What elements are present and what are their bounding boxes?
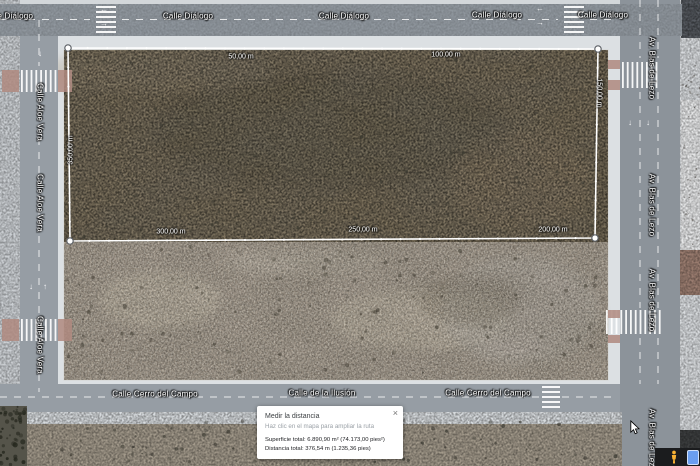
shrub [208, 426, 211, 429]
shrub [309, 305, 311, 307]
measure-tick-dot [558, 48, 560, 50]
shrub [11, 417, 14, 420]
shrub [234, 311, 236, 313]
shrub [226, 430, 230, 434]
shrub [539, 335, 543, 339]
measure-tick-dot [68, 124, 70, 126]
shrub [602, 95, 604, 97]
shrub [8, 412, 13, 417]
shrub [170, 324, 173, 327]
shrub [535, 450, 536, 451]
shrub [688, 255, 689, 256]
measure-tick-dot [67, 66, 69, 68]
shrub [82, 334, 85, 337]
shrub [584, 284, 588, 288]
measure-tick-dot [69, 221, 71, 223]
shrub [96, 449, 98, 451]
close-icon[interactable]: × [393, 408, 398, 418]
shrub [473, 436, 477, 440]
shrub [538, 447, 542, 451]
shrub [250, 448, 254, 452]
shrub [145, 454, 147, 456]
shrub [148, 303, 150, 305]
shrub [594, 275, 598, 279]
shrub [421, 441, 424, 444]
shrub [348, 254, 350, 256]
shrub [241, 419, 244, 422]
measure-vertex[interactable] [595, 46, 601, 52]
shrub [515, 298, 517, 300]
shrub [60, 448, 64, 452]
shrub [142, 445, 144, 447]
shrub [279, 277, 282, 280]
shrub [688, 116, 689, 117]
shrub [431, 271, 435, 275]
shrub [170, 427, 173, 430]
shrub [441, 286, 444, 289]
shrub [445, 430, 448, 433]
shrub [130, 349, 134, 353]
shrub [696, 240, 698, 242]
shrub [586, 292, 588, 294]
shrub [206, 253, 210, 257]
shrub [440, 454, 442, 456]
shrub [598, 130, 601, 133]
measure-tick-dot [87, 47, 89, 49]
shrub [21, 446, 24, 449]
measure-tick-dot [302, 239, 304, 241]
measure-tick-dot [186, 239, 188, 241]
shrub [504, 330, 506, 332]
shrub [483, 325, 487, 329]
shrub [436, 265, 438, 267]
shrub [689, 90, 691, 92]
measure-popup-title: Medir la distancia [265, 412, 395, 421]
shrub [127, 365, 130, 368]
shrub [598, 88, 601, 91]
measure-tick-dot [68, 105, 70, 107]
measure-tick-dot [302, 47, 304, 49]
shrub [21, 410, 26, 415]
shrub [82, 286, 84, 288]
shrub [600, 156, 603, 159]
shrub [127, 459, 130, 462]
shrub [133, 428, 134, 429]
shrub [513, 257, 517, 261]
shrub [152, 329, 154, 331]
measure-tick-dot [263, 239, 265, 241]
shrub [67, 180, 68, 181]
pegman-icon[interactable] [669, 450, 679, 464]
shrub [223, 438, 227, 442]
shrub [327, 260, 331, 264]
measure-tick-dot [419, 238, 421, 240]
shrub [238, 370, 242, 374]
measure-tick-dot [127, 240, 129, 242]
measure-tick-dot [166, 239, 168, 241]
shrub [512, 453, 514, 455]
shrub [592, 330, 596, 334]
measure-tick-dot [224, 47, 226, 49]
measure-tick-dot [596, 124, 598, 126]
shrub [70, 453, 73, 456]
shrub [598, 136, 599, 137]
shrub [485, 457, 487, 459]
shrub [197, 424, 200, 427]
shrub [271, 330, 273, 332]
shrub [87, 310, 91, 314]
shrub [306, 340, 309, 343]
shrub [529, 444, 531, 446]
measure-tick-dot [263, 47, 265, 49]
shrub [503, 341, 505, 343]
shrub [142, 250, 144, 252]
shrub [694, 174, 695, 175]
shrub [422, 371, 424, 373]
shrub [360, 313, 363, 316]
measure-tick-dot [399, 238, 401, 240]
shrub [322, 266, 326, 270]
shrub [191, 429, 193, 431]
shrub [698, 193, 700, 195]
shrub [20, 439, 25, 444]
measure-tick-dot [224, 239, 226, 241]
shrub [339, 250, 342, 253]
shrub [161, 332, 165, 336]
measure-surface-total: Superficie total: 6.890,90 m² (74.173,00… [265, 436, 395, 445]
shrub [683, 211, 685, 213]
shrub [22, 460, 26, 464]
shrub [599, 426, 601, 428]
shrub [361, 336, 364, 339]
shrub [16, 408, 18, 410]
shrub [376, 308, 380, 312]
shrub [48, 454, 52, 458]
shrub [494, 442, 497, 445]
shrub [133, 446, 135, 448]
shrub [691, 76, 693, 78]
shrub [278, 298, 281, 301]
shrub [589, 322, 593, 326]
measure-tick-dot [594, 218, 596, 220]
measure-tick-dot [69, 201, 71, 203]
shrub [564, 288, 568, 292]
measure-tick-dot [88, 240, 90, 242]
shrub [398, 260, 401, 263]
measure-path[interactable] [68, 48, 598, 241]
shrub [454, 456, 457, 459]
measure-tick-dot [438, 238, 440, 240]
shrub [601, 329, 604, 332]
shrub [275, 277, 278, 280]
shrub [113, 458, 115, 460]
shrub [371, 309, 375, 313]
shrub [489, 326, 493, 330]
shrub [268, 359, 272, 363]
shrub [80, 440, 82, 442]
measure-popup-hint: Haz clic en el mapa para ampliar la ruta [265, 423, 395, 431]
measure-tick-dot [597, 67, 599, 69]
shrub [2, 451, 5, 454]
shrub [82, 319, 84, 321]
shrub [175, 447, 179, 451]
shrub [569, 338, 572, 341]
shrub [536, 349, 538, 351]
shrub [486, 336, 489, 339]
measure-tick-dot [401, 48, 403, 50]
shrub [328, 324, 330, 326]
measure-tick-dot [380, 238, 382, 240]
measure-tick-dot [440, 48, 442, 50]
shrub [149, 338, 153, 342]
shrub [14, 411, 19, 416]
shrub [253, 460, 256, 463]
measure-tick-dot [108, 240, 110, 242]
shrub [697, 152, 698, 153]
shrub [561, 453, 563, 455]
shrub [307, 281, 311, 285]
shrub [171, 277, 174, 280]
measure-tick-dot [538, 48, 540, 50]
shrub [201, 291, 204, 294]
measure-tick-dot [518, 48, 520, 50]
shrub [600, 83, 603, 86]
shrub [177, 453, 179, 455]
shrub [123, 304, 127, 308]
shrub [609, 459, 612, 462]
shrub [102, 426, 103, 427]
shrub [474, 284, 476, 286]
measure-tick-dot [516, 237, 518, 239]
measure-tick-dot [479, 48, 481, 50]
shrub [490, 439, 493, 442]
shrub [6, 437, 8, 439]
shrub [693, 75, 695, 77]
shrub [685, 213, 687, 215]
shrub [14, 438, 17, 441]
shrub [323, 272, 327, 276]
shrub [440, 295, 443, 298]
shrub [80, 354, 82, 356]
measure-tick-dot [477, 238, 479, 240]
shrub [91, 276, 95, 280]
shrub [435, 325, 439, 329]
shrub [112, 269, 114, 271]
shrub [213, 458, 214, 459]
shrub [535, 458, 538, 461]
shrub [684, 219, 685, 220]
shrub [459, 273, 463, 277]
shrub [574, 453, 577, 456]
shrub [422, 297, 425, 300]
measure-tick-dot [165, 47, 167, 49]
shrub [467, 263, 469, 265]
shrub [557, 423, 561, 427]
shrub [30, 427, 31, 428]
shrub [205, 421, 209, 425]
shrub [189, 245, 193, 249]
shrub [444, 446, 446, 448]
shrub [140, 286, 144, 290]
shrub [380, 268, 383, 271]
shrub [278, 353, 282, 357]
shrub [345, 309, 347, 311]
shrub [684, 197, 685, 198]
measure-tick-dot [361, 238, 363, 240]
shrub [685, 86, 686, 87]
shrub [151, 453, 154, 456]
shrub [392, 351, 396, 355]
shrub [695, 65, 697, 67]
shrub [145, 447, 147, 449]
shrub [183, 324, 185, 326]
shrub [4, 411, 8, 415]
shrub [590, 344, 593, 347]
shrub [101, 339, 104, 342]
shrub [692, 244, 693, 245]
shrub [19, 433, 23, 437]
shrub [18, 412, 22, 416]
shrub [692, 219, 694, 221]
shrub [412, 295, 415, 298]
shrub [130, 332, 134, 336]
shrub [184, 461, 185, 462]
shrub [513, 246, 516, 249]
shrub [690, 81, 692, 83]
shrub [578, 284, 580, 286]
shrub [398, 274, 402, 278]
shrub [407, 459, 410, 462]
shrub [120, 332, 124, 336]
shrub [531, 275, 534, 278]
measure-vertex[interactable] [65, 45, 71, 51]
measure-popup: Medir la distancia Haz clic en el mapa p… [257, 406, 403, 459]
shrub [583, 456, 587, 460]
shrub [350, 255, 353, 258]
shrub [584, 441, 586, 443]
satellite-map[interactable]: Calle Diálogo Calle Diálogo Calle Diálog… [0, 0, 700, 466]
shrub [696, 222, 698, 224]
shrub [198, 331, 200, 333]
measure-tick-dot [204, 47, 206, 49]
shrub [689, 197, 691, 199]
shrub [347, 290, 349, 292]
shrub [372, 358, 376, 362]
shrub [195, 286, 198, 289]
shrub [458, 249, 462, 253]
shrub [180, 447, 184, 451]
measure-tick-dot [283, 47, 285, 49]
shrub [594, 430, 597, 433]
map-controls-bar [655, 448, 700, 466]
measure-tick-dot [185, 47, 187, 49]
shrub [163, 435, 166, 438]
shrub [19, 421, 22, 424]
shrub [684, 144, 685, 145]
measure-tick-dot [145, 47, 147, 49]
measure-tick-dot [420, 48, 422, 50]
measure-vertex[interactable] [67, 238, 73, 244]
shrub [188, 460, 191, 463]
shrub [90, 345, 92, 347]
shrub [444, 258, 447, 261]
shrub [402, 312, 404, 314]
shrub [415, 342, 417, 344]
measure-tick-dot [459, 48, 461, 50]
shrub [687, 86, 689, 88]
shrub [412, 273, 416, 277]
shrub [345, 363, 349, 367]
shrub [12, 427, 14, 429]
measure-tick-dot [67, 86, 69, 88]
shrub [213, 343, 216, 346]
shrub [307, 460, 308, 461]
shrub [689, 180, 691, 182]
shrub [80, 343, 84, 347]
shrub [480, 439, 482, 441]
shrub [82, 430, 84, 432]
shrub [5, 419, 9, 423]
measure-tick-dot [497, 237, 499, 239]
shrub [514, 294, 517, 297]
shrub [281, 270, 283, 272]
measure-vertex[interactable] [592, 235, 598, 241]
shrub [468, 420, 469, 421]
shrub [17, 406, 19, 408]
shrub [233, 457, 234, 458]
shrub [530, 349, 532, 351]
measure-tick-dot [555, 237, 557, 239]
shrub [373, 461, 376, 464]
shrub [86, 427, 89, 430]
shrub [433, 438, 435, 440]
shrub [508, 355, 511, 358]
shrub [600, 121, 602, 123]
shrub [324, 258, 328, 262]
shrub [431, 427, 435, 431]
shrub [169, 255, 170, 256]
shrub [78, 284, 80, 286]
shrub [208, 299, 210, 301]
shrub [489, 420, 493, 424]
measure-tick-dot [577, 48, 579, 50]
shrub [689, 194, 690, 195]
shrub [365, 328, 367, 330]
shrub [509, 277, 511, 279]
shrub [13, 455, 17, 459]
shrub [601, 297, 605, 301]
shrub [522, 308, 525, 311]
measure-tick-dot [596, 105, 598, 107]
shrub [687, 212, 688, 213]
shrub [90, 304, 94, 308]
shrub [696, 236, 697, 237]
shrub [202, 433, 206, 437]
shrub [272, 257, 276, 261]
shrub [236, 461, 237, 462]
measure-tick-dot [342, 47, 344, 49]
shrub [697, 94, 699, 96]
shrub [13, 410, 15, 412]
measure-tick-dot [147, 239, 149, 241]
measure-tick-dot [68, 182, 70, 184]
shrub [121, 445, 125, 449]
minimap-toggle[interactable] [687, 450, 699, 465]
shrub [214, 443, 217, 446]
shrub [562, 353, 565, 356]
shrub [9, 434, 11, 436]
measure-tick-dot [283, 239, 285, 241]
